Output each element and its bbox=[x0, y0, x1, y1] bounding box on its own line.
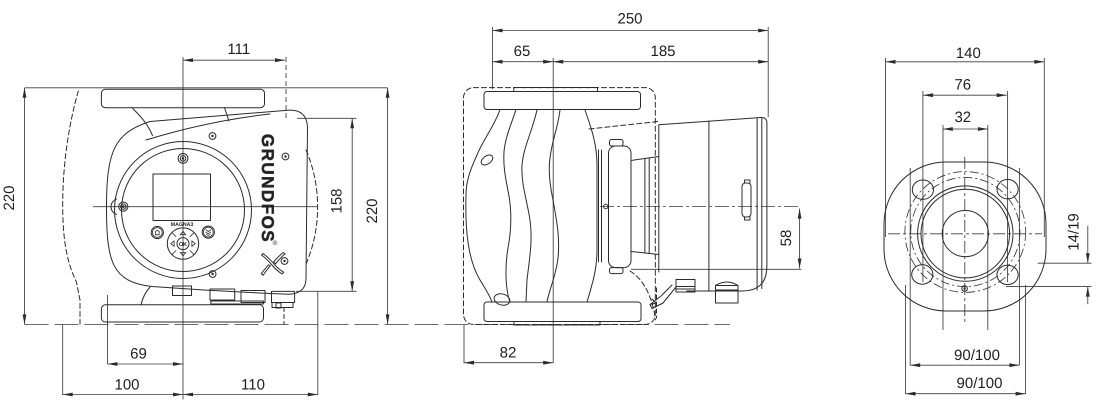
svg-text:76: 76 bbox=[954, 77, 971, 94]
svg-text:58: 58 bbox=[778, 230, 795, 247]
svg-text:220: 220 bbox=[1, 185, 18, 210]
svg-text:158: 158 bbox=[329, 188, 346, 213]
svg-text:65: 65 bbox=[514, 43, 531, 60]
svg-text:220: 220 bbox=[364, 198, 381, 223]
svg-text:14/19: 14/19 bbox=[1065, 213, 1082, 251]
svg-text:111: 111 bbox=[227, 41, 250, 58]
svg-text:250: 250 bbox=[617, 11, 642, 28]
svg-text:GRUNDFOS: GRUNDFOS bbox=[258, 134, 277, 243]
svg-text:140: 140 bbox=[956, 45, 981, 62]
svg-text:100: 100 bbox=[114, 377, 139, 394]
svg-text:90/100: 90/100 bbox=[954, 347, 1000, 364]
svg-text:185: 185 bbox=[650, 43, 675, 60]
svg-text:OK: OK bbox=[179, 242, 187, 248]
svg-text:90/100: 90/100 bbox=[957, 375, 1003, 392]
svg-text:69: 69 bbox=[130, 346, 147, 363]
svg-text:82: 82 bbox=[500, 345, 517, 362]
svg-text:110: 110 bbox=[241, 377, 265, 394]
svg-text:®: ® bbox=[273, 240, 278, 247]
svg-text:32: 32 bbox=[954, 109, 971, 126]
svg-text:MAGNA3: MAGNA3 bbox=[171, 222, 194, 228]
